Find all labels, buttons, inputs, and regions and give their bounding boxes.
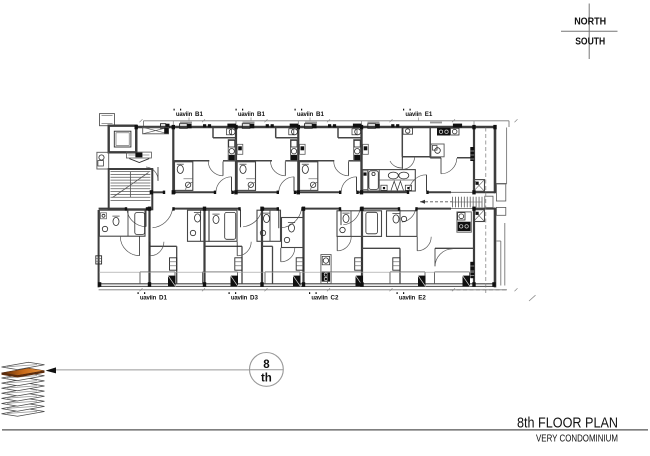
svg-text:E1: E1 <box>425 111 433 118</box>
svg-text:NORTH: NORTH <box>574 16 606 28</box>
svg-text:VERY CONDOMINIUM: VERY CONDOMINIUM <box>536 433 618 445</box>
svg-text:uaviin: uaviin <box>297 112 314 118</box>
svg-text:D1: D1 <box>159 295 167 302</box>
svg-text:uaviin: uaviin <box>399 296 416 302</box>
svg-text:SOUTH: SOUTH <box>575 36 605 48</box>
svg-text:B1: B1 <box>316 111 324 118</box>
svg-text:uaviin: uaviin <box>405 112 422 118</box>
svg-text:uaviin: uaviin <box>140 296 157 302</box>
svg-text:uaviin: uaviin <box>238 112 255 118</box>
svg-text:E2: E2 <box>418 295 426 302</box>
svg-text:8th FLOOR PLAN: 8th FLOOR PLAN <box>517 415 618 432</box>
svg-text:D3: D3 <box>250 295 258 302</box>
svg-text:uaviin: uaviin <box>231 296 248 302</box>
svg-text:B1: B1 <box>195 111 203 118</box>
svg-text:uaviin: uaviin <box>176 112 193 118</box>
svg-text:C2: C2 <box>331 295 339 302</box>
svg-text:B1: B1 <box>257 111 265 118</box>
svg-text:th: th <box>261 373 272 385</box>
svg-text:uaviin: uaviin <box>311 296 328 302</box>
svg-text:8: 8 <box>263 359 270 371</box>
